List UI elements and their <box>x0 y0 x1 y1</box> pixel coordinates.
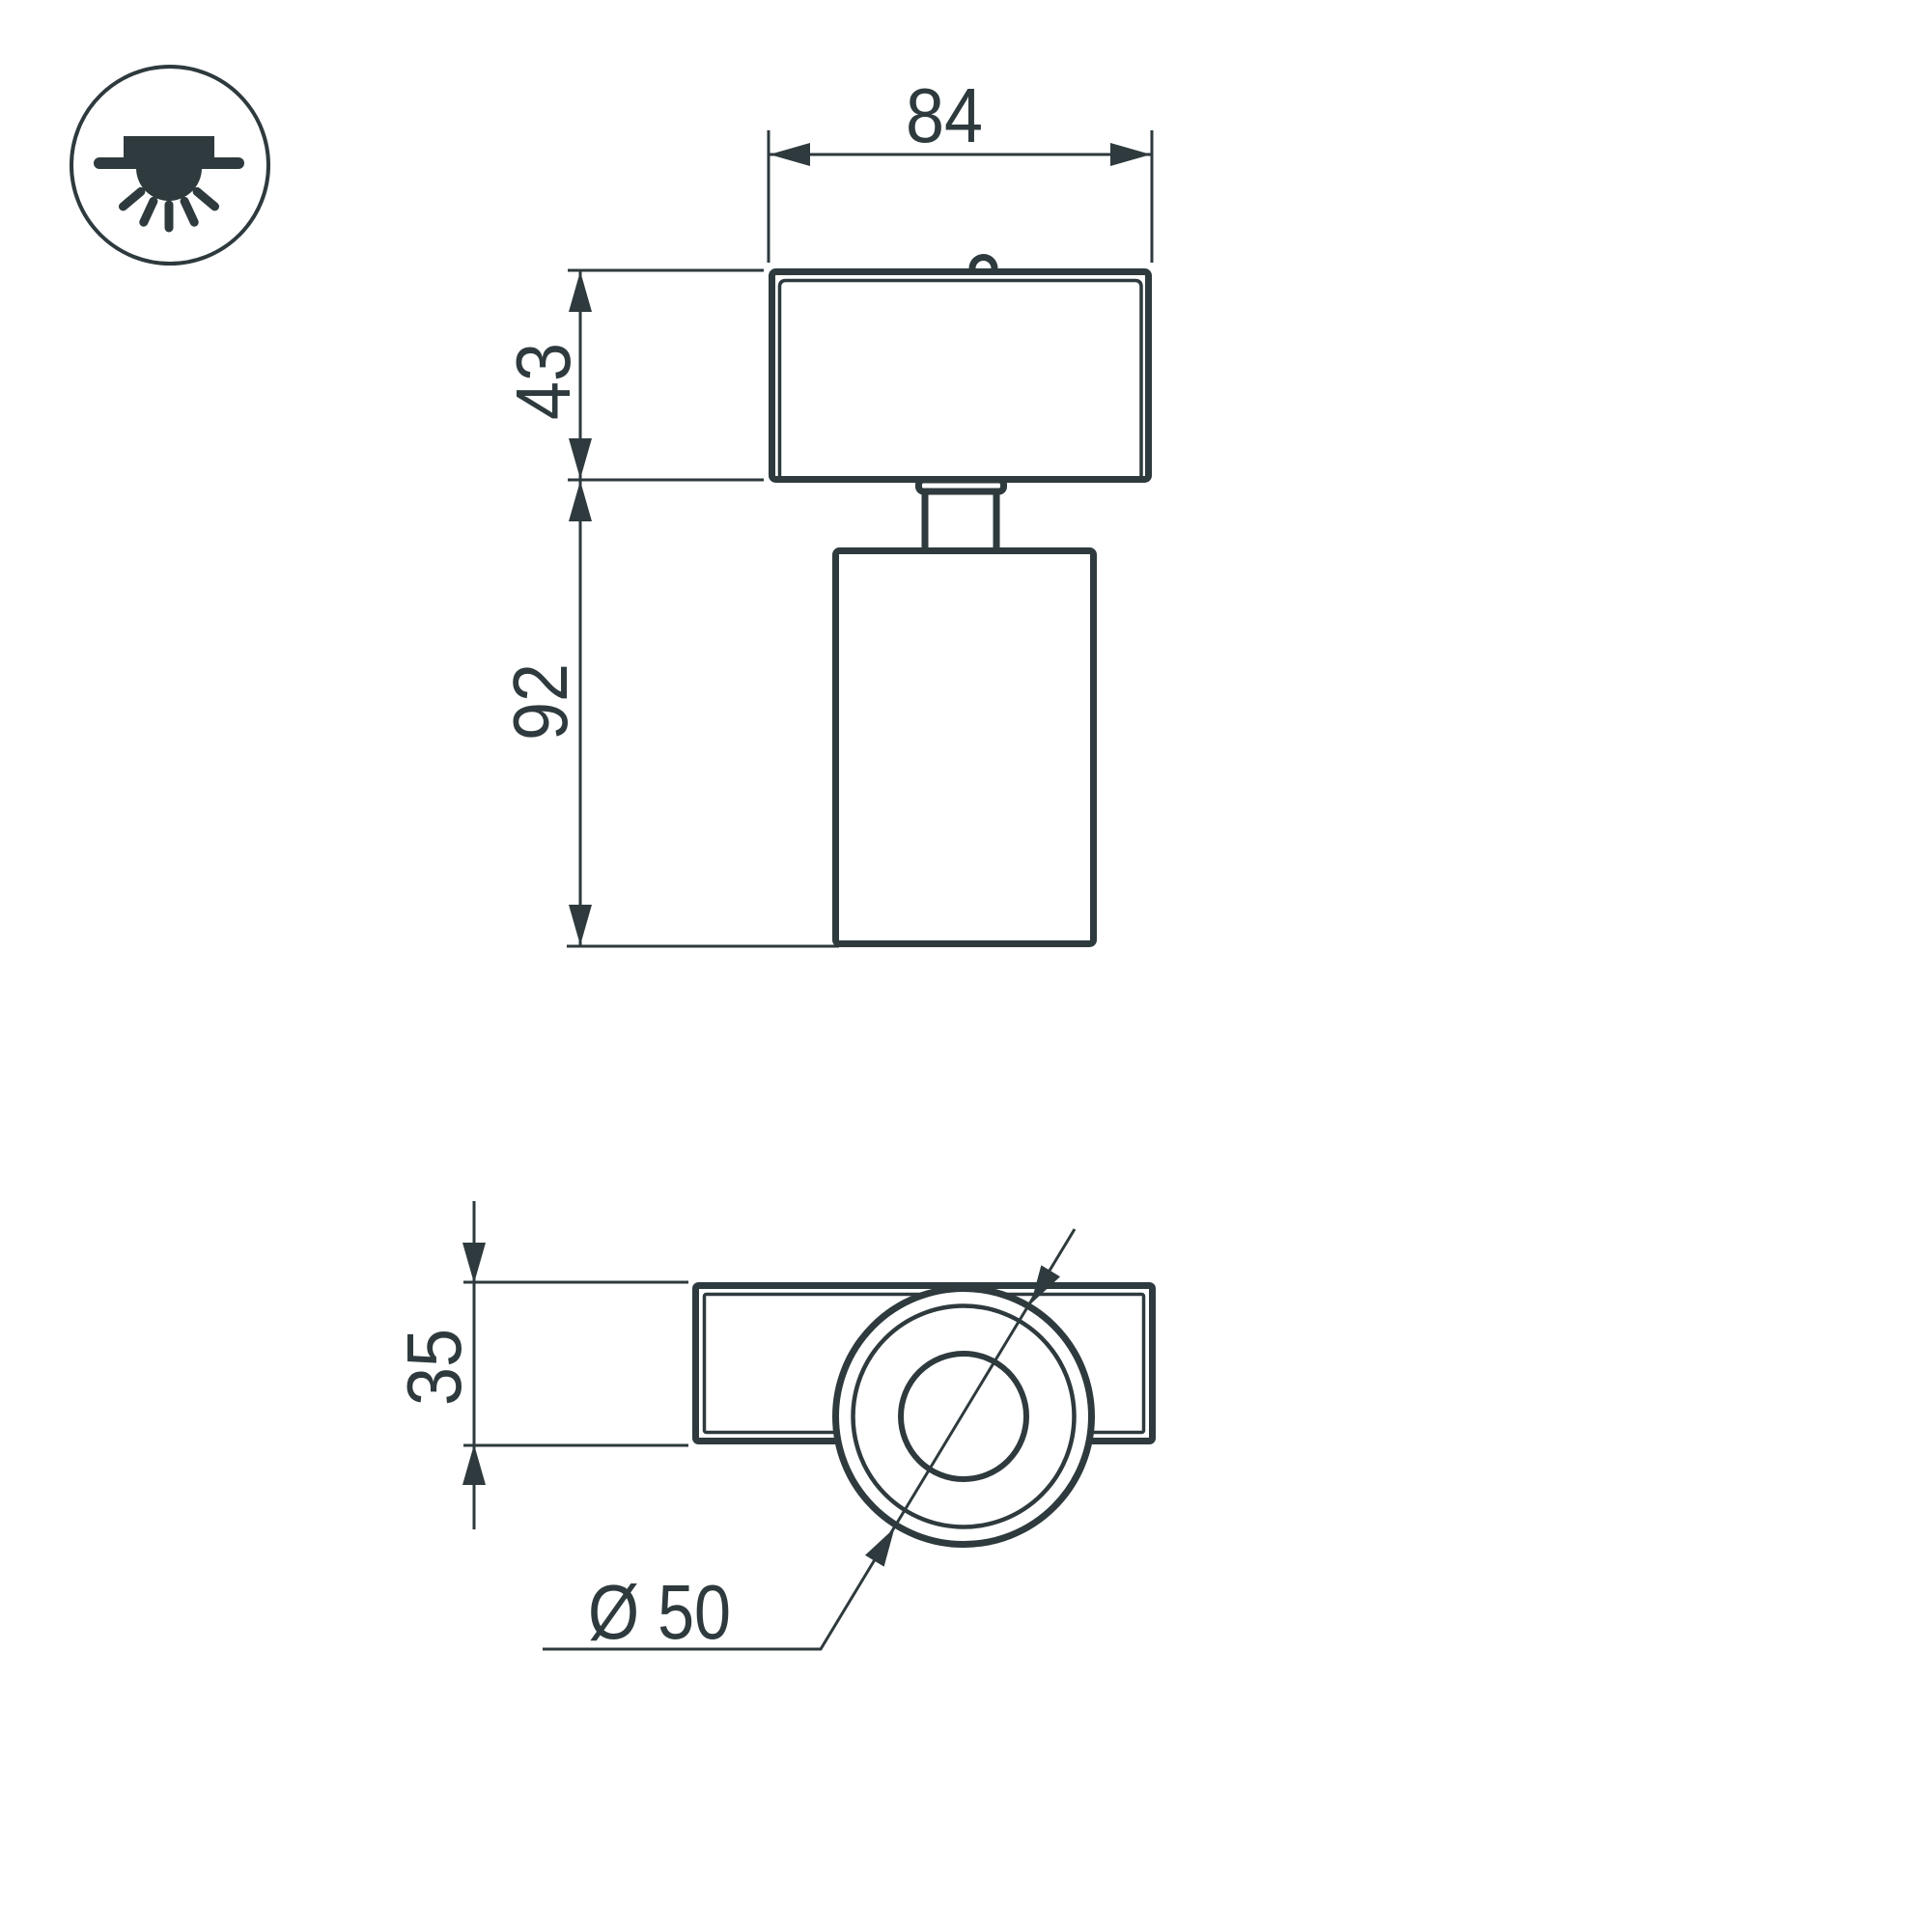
extension-lines-43 <box>568 270 764 480</box>
adapter-outer-outline <box>772 272 1149 480</box>
dimension-adapter-height: 43 <box>500 270 764 480</box>
dimension-label-92: 92 <box>497 663 583 741</box>
arrowhead-right <box>1110 143 1151 166</box>
arrowhead-down <box>569 438 592 479</box>
arrowhead-lower <box>865 1528 895 1567</box>
dimension-body-height: 92 <box>497 481 839 946</box>
dimension-plate-depth: 35 <box>391 1201 688 1529</box>
bottom-view <box>696 1286 1153 1545</box>
arrowhead-up <box>462 1444 486 1485</box>
extension-lines-35 <box>463 1282 688 1445</box>
arrowhead-up <box>569 271 592 312</box>
front-view <box>772 258 1149 944</box>
dimension-label-84: 84 <box>906 72 983 158</box>
arrowhead-down <box>569 905 592 945</box>
dimension-label-diameter: Ø 50 <box>588 1569 731 1655</box>
drawing-sheet: 84 43 92 35 <box>0 0 1932 1932</box>
arrowhead-up <box>569 481 592 521</box>
adapter-collar <box>919 480 1004 491</box>
adapter-inner-outline <box>780 281 1142 482</box>
surface-mount-light-icon <box>71 67 268 264</box>
dimension-adapter-width: 84 <box>769 72 1152 263</box>
icon-ceiling-bar <box>94 157 244 169</box>
lens-circle <box>901 1354 1026 1479</box>
icon-lamp-dome <box>136 168 202 201</box>
track-adapter-box <box>772 258 1149 482</box>
swivel-neck <box>925 491 996 547</box>
dimension-drawing: 84 43 92 35 <box>0 0 1932 1932</box>
dimension-label-43: 43 <box>500 343 586 420</box>
adapter-top-loop <box>972 258 994 269</box>
body-bottom-circles <box>836 1289 1092 1545</box>
dimension-label-35: 35 <box>391 1329 477 1406</box>
arrowhead-down <box>462 1243 486 1283</box>
arrowhead-left <box>770 143 810 166</box>
cylinder-body-outline <box>836 551 1094 944</box>
